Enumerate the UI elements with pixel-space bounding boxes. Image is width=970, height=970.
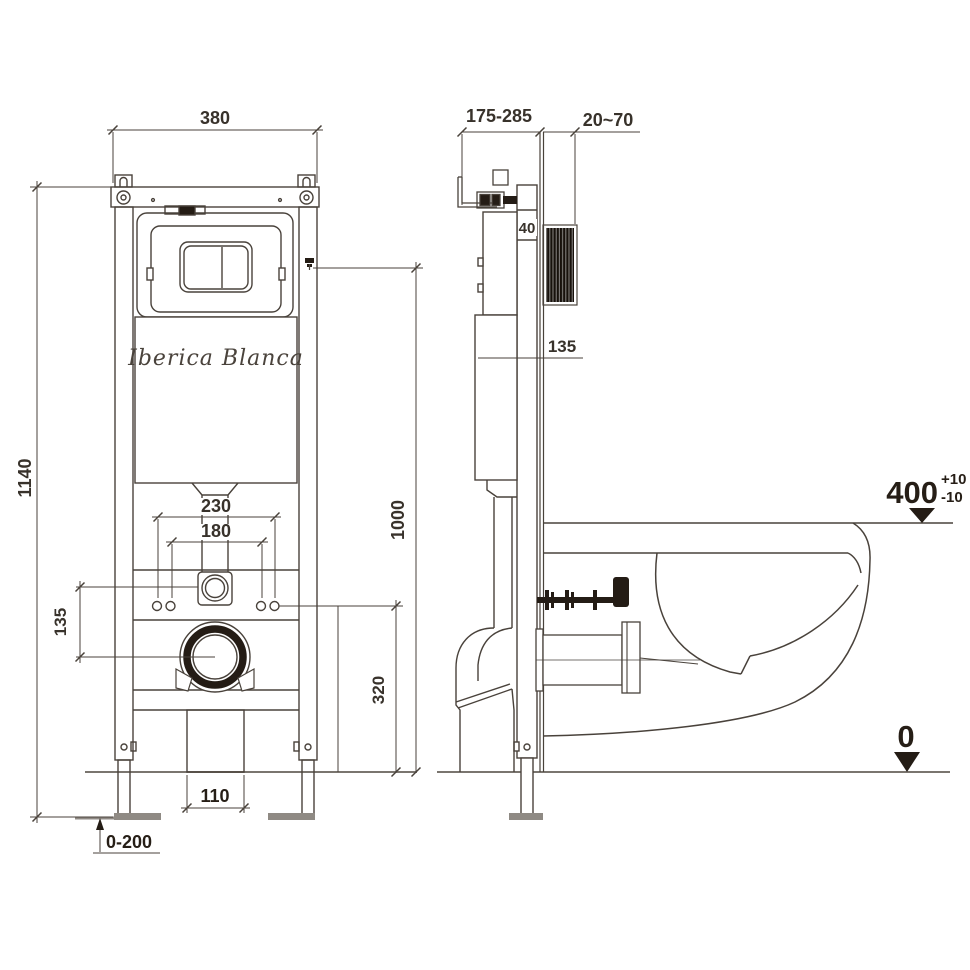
drain-elbow	[456, 497, 514, 772]
floor-datum-icon	[894, 752, 920, 772]
dim-bolt-span-outer: 230	[201, 496, 231, 516]
drawing-canvas: Iberica Blanca	[0, 0, 970, 970]
dim-floor-level: 0	[897, 719, 914, 754]
level-mark-icon	[305, 258, 314, 270]
dim-foot-adjust: 0-200	[106, 832, 152, 852]
dim-tank-mark: 135	[548, 337, 576, 356]
dim-seat-tol-plus: +10	[941, 471, 966, 488]
dim-frame-width: 380	[200, 108, 230, 128]
dim-inlet-to-drain: 135	[51, 608, 70, 636]
dim-frame-height: 1140	[15, 458, 35, 497]
cistern-side	[475, 212, 517, 497]
fixing-rod	[537, 577, 629, 610]
technical-drawing-toilet-frame: Iberica Blanca	[0, 0, 970, 970]
outlet-connector	[536, 622, 700, 693]
water-inlet-fitting	[198, 572, 232, 605]
dim-wall-finish: 20~70	[583, 110, 634, 130]
flush-housing-side	[543, 225, 577, 305]
wall-bracket	[458, 170, 517, 208]
dim-seat-height: 400	[886, 475, 938, 510]
brand-logo: Iberica Blanca	[127, 346, 304, 371]
toilet-bowl	[543, 523, 953, 736]
flush-plate-assembly	[137, 206, 293, 317]
seat-height-datum-icon	[909, 508, 935, 523]
dim-seat-tol-minus: -10	[941, 489, 963, 506]
dim-outlet-width: 110	[200, 786, 229, 806]
dim-depth-adjust: 175-285	[466, 106, 532, 126]
dim-rail-depth: 40	[519, 220, 536, 237]
dim-bolt-height: 320	[369, 676, 388, 704]
dim-flush-height: 1000	[388, 500, 408, 540]
foot-adjust-arrow	[96, 818, 104, 830]
dim-bolt-span-inner: 180	[201, 521, 231, 541]
clip-icon	[179, 206, 195, 215]
